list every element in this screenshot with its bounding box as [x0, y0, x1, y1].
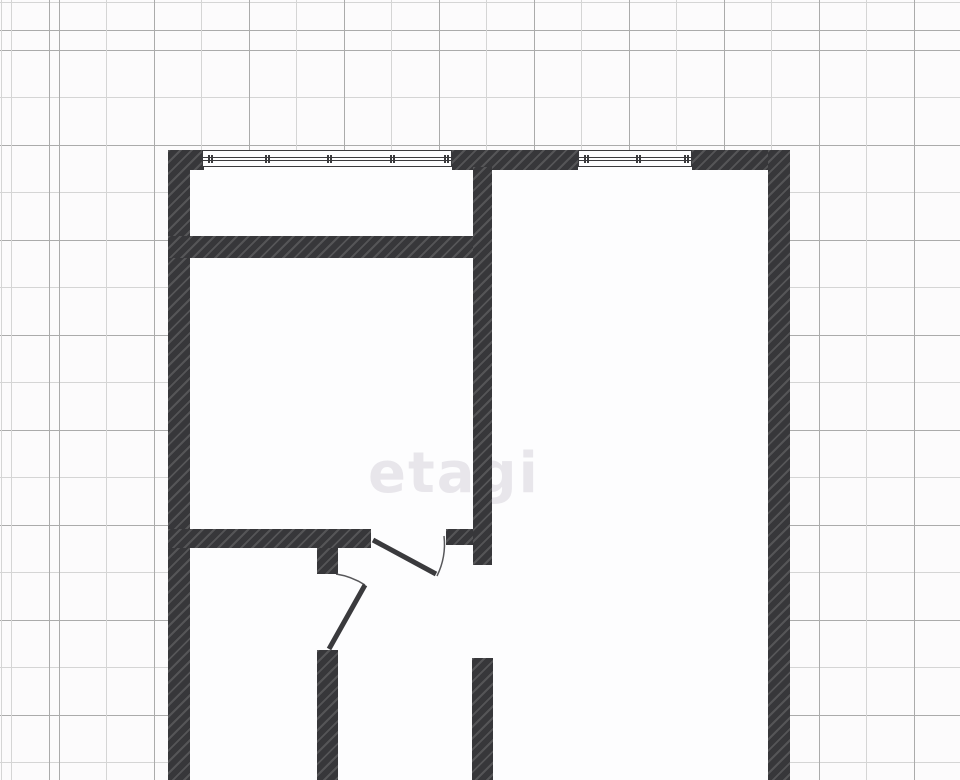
- door-bathroom-swing-arc: [336, 574, 365, 585]
- floor-plan-canvas: etagi: [0, 0, 960, 780]
- door-hallway-swing-arc: [437, 536, 444, 576]
- door-hallway-leaf: [373, 540, 436, 574]
- doors-layer: [0, 0, 960, 780]
- door-bathroom-leaf: [329, 585, 365, 649]
